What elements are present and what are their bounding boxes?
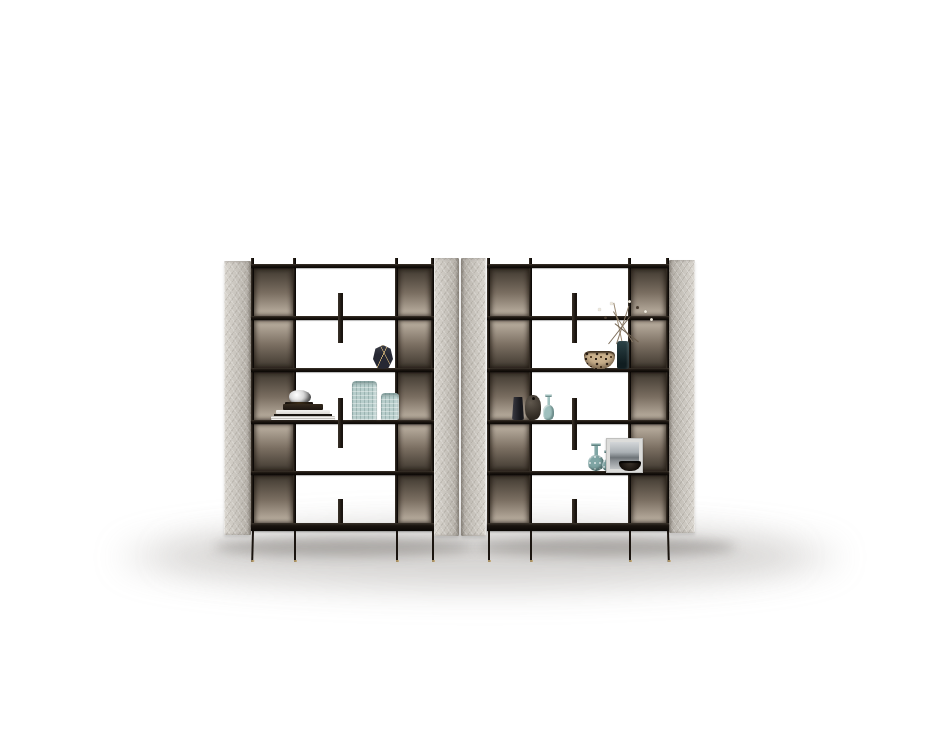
- back-panel: [631, 372, 666, 420]
- side-panel: [434, 258, 459, 536]
- post: [628, 258, 631, 531]
- divider-fin: [338, 499, 343, 523]
- shelf: [487, 368, 669, 372]
- faceted-vase: [373, 345, 393, 369]
- divider-fin: [572, 293, 577, 343]
- shelf: [487, 264, 669, 268]
- post: [487, 258, 490, 531]
- charcoal-vase-slim: [512, 397, 524, 420]
- product-scene: [0, 0, 950, 733]
- leg: [432, 531, 434, 562]
- blossom: [650, 318, 653, 321]
- back-panel: [398, 320, 431, 368]
- leg: [396, 531, 398, 562]
- back-panel: [490, 268, 529, 316]
- leg: [629, 531, 631, 562]
- back-panel: [398, 372, 431, 420]
- back-panel: [398, 268, 431, 316]
- bottle-body: [543, 405, 554, 420]
- shelf: [487, 420, 669, 424]
- back-panel: [490, 320, 529, 368]
- divider-fin: [572, 398, 577, 450]
- shelf: [251, 264, 434, 268]
- base-shelf: [251, 523, 434, 531]
- side-panel: [669, 260, 695, 533]
- blossom: [610, 302, 613, 305]
- shelf: [251, 368, 434, 372]
- post: [431, 258, 434, 531]
- floor-shadow-right: [476, 538, 736, 556]
- side-panel: [461, 258, 486, 536]
- leg: [530, 531, 532, 562]
- blossom: [636, 306, 639, 309]
- leg: [294, 531, 296, 562]
- branch: [613, 311, 633, 342]
- back-panel: [254, 268, 293, 316]
- teal-glass-bottle: [543, 394, 554, 420]
- divider-fin: [572, 499, 577, 523]
- blossom: [644, 310, 647, 313]
- book: [271, 416, 335, 420]
- branch-vase: [617, 341, 629, 369]
- base-shelf: [487, 523, 669, 531]
- divider-fin: [338, 293, 343, 343]
- back-panel: [490, 475, 529, 523]
- back-panel: [254, 320, 293, 368]
- blossom: [604, 316, 607, 319]
- post: [666, 258, 669, 531]
- blossom: [598, 308, 601, 311]
- back-panel: [398, 424, 431, 471]
- leg: [488, 531, 490, 562]
- celadon-vase-large: [352, 381, 377, 420]
- back-panel: [398, 475, 431, 523]
- back-panel: [254, 424, 293, 471]
- back-panel: [254, 475, 293, 523]
- back-panel: [490, 424, 529, 471]
- speckled-bowl: [584, 351, 615, 369]
- blossom: [628, 300, 631, 303]
- shelf: [251, 471, 434, 475]
- celadon-vase-small: [381, 393, 399, 420]
- divider-fin: [338, 398, 343, 448]
- side-panel: [224, 261, 251, 535]
- post: [251, 258, 254, 531]
- charcoal-vase-pebble: [525, 395, 541, 420]
- back-panel: [631, 475, 666, 523]
- floor-shadow: [160, 528, 800, 582]
